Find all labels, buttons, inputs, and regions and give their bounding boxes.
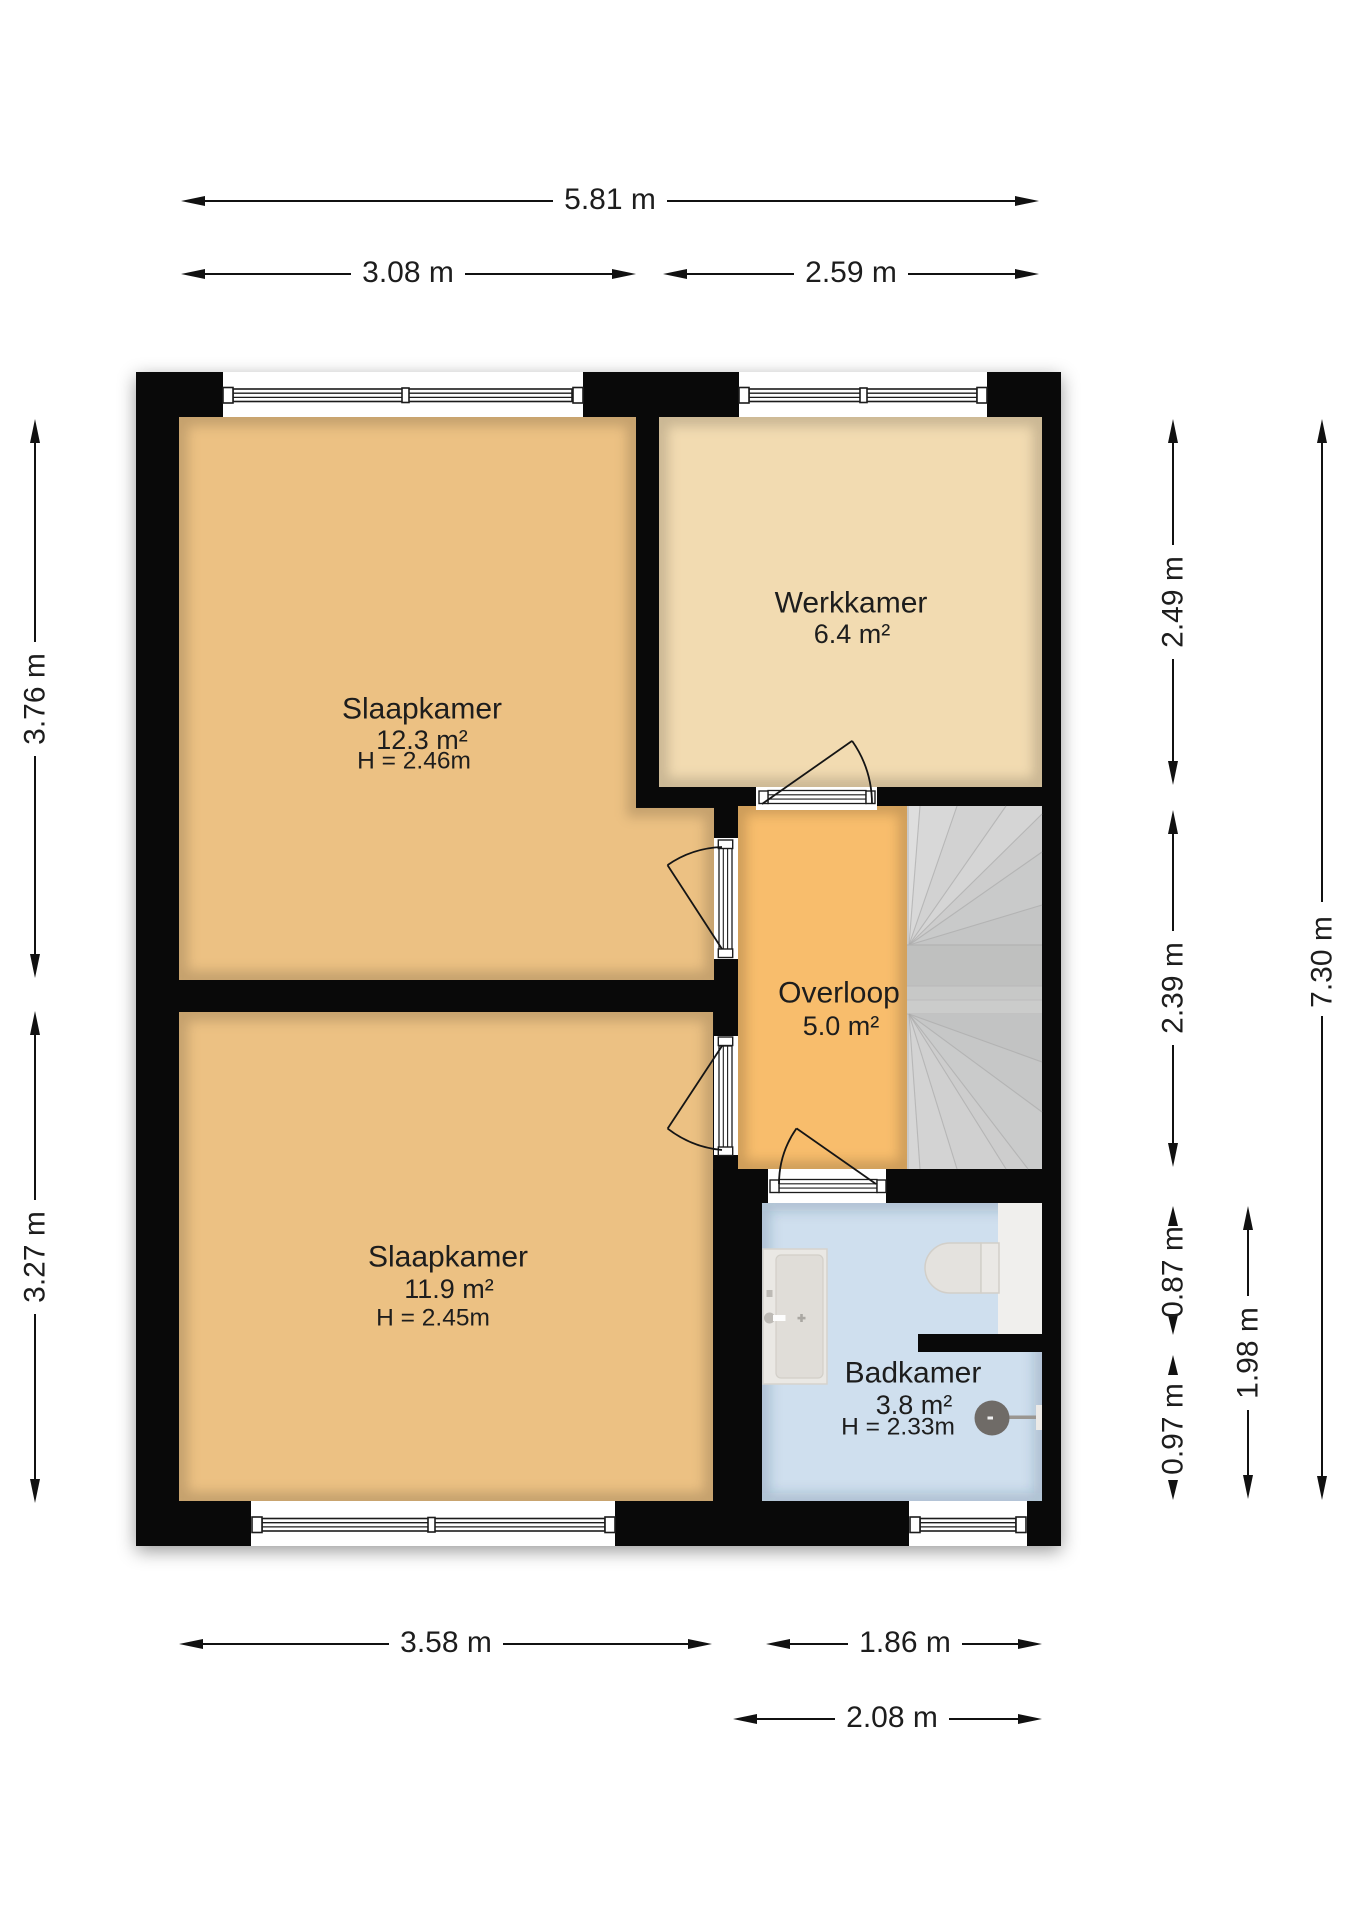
- svg-text:6.4 m²: 6.4 m²: [814, 619, 891, 649]
- svg-text:3.76 m: 3.76 m: [19, 653, 52, 745]
- svg-text:7.30 m: 7.30 m: [1306, 916, 1339, 1008]
- svg-text:5.81 m: 5.81 m: [564, 183, 656, 216]
- svg-text:0.87 m: 0.87 m: [1157, 1226, 1190, 1318]
- svg-text:2.59 m: 2.59 m: [805, 256, 897, 289]
- svg-text:H = 2.33m: H = 2.33m: [841, 1414, 955, 1441]
- svg-text:Werkkamer: Werkkamer: [775, 587, 928, 620]
- svg-text:11.9 m²: 11.9 m²: [404, 1274, 494, 1304]
- svg-text:H = 2.46m: H = 2.46m: [357, 748, 471, 775]
- svg-text:3.58 m: 3.58 m: [400, 1626, 492, 1659]
- svg-text:2.08 m: 2.08 m: [846, 1701, 938, 1734]
- svg-text:1.86 m: 1.86 m: [859, 1626, 951, 1659]
- svg-text:2.49 m: 2.49 m: [1157, 556, 1190, 648]
- svg-text:1.98 m: 1.98 m: [1232, 1307, 1265, 1399]
- svg-text:5.0 m²: 5.0 m²: [803, 1011, 880, 1041]
- svg-text:3.08 m: 3.08 m: [362, 256, 454, 289]
- svg-text:Slaapkamer: Slaapkamer: [342, 693, 502, 726]
- svg-text:Slaapkamer: Slaapkamer: [368, 1241, 528, 1274]
- svg-text:0.97 m: 0.97 m: [1157, 1383, 1190, 1475]
- svg-text:Badkamer: Badkamer: [845, 1357, 982, 1390]
- svg-text:H = 2.45m: H = 2.45m: [376, 1305, 490, 1332]
- svg-text:3.27 m: 3.27 m: [19, 1211, 52, 1303]
- svg-text:2.39 m: 2.39 m: [1157, 942, 1190, 1034]
- svg-text:Overloop: Overloop: [778, 977, 900, 1010]
